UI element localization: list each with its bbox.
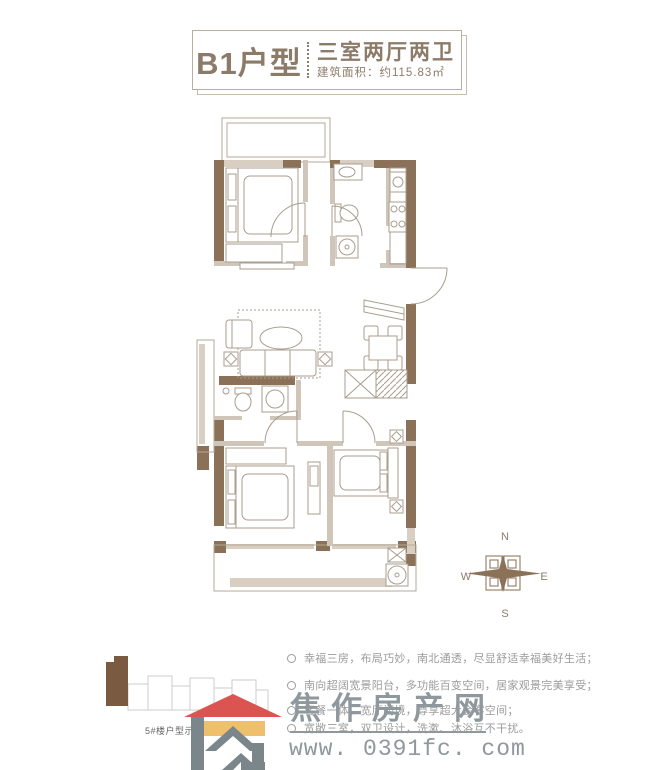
title-divider bbox=[307, 42, 309, 78]
hall-closet bbox=[345, 370, 407, 398]
floor-plan bbox=[190, 95, 455, 595]
unit-name: B1户型 bbox=[193, 38, 305, 83]
watermark-site-name: 焦作房产网 bbox=[290, 691, 495, 727]
logo-roof-icon bbox=[184, 694, 282, 717]
coffee-table-icon bbox=[260, 327, 302, 349]
sofa-icon bbox=[240, 350, 316, 376]
wardrobe-icon bbox=[226, 244, 282, 262]
compass-west-label: W bbox=[461, 571, 472, 583]
bathroom-south bbox=[223, 386, 288, 412]
unit-area: 建筑面积：约115.83㎡ bbox=[317, 66, 455, 81]
bed-icon bbox=[238, 168, 298, 242]
compass-east-label: E bbox=[540, 571, 547, 583]
compass: N S W E bbox=[455, 520, 555, 620]
bedroom-master bbox=[226, 168, 298, 269]
north-balcony bbox=[222, 118, 330, 162]
watermark-site-url: www. 0391fc. com bbox=[289, 736, 526, 762]
south-balcony bbox=[386, 548, 408, 586]
dining-area bbox=[364, 300, 404, 370]
closet-hatch-icon bbox=[376, 370, 407, 398]
bullet-icon bbox=[287, 654, 296, 663]
compass-south-label: S bbox=[501, 608, 508, 620]
site-logo bbox=[182, 692, 292, 770]
floorplan-page: B1户型 三室两厅两卫 建筑面积：约115.83㎡ bbox=[0, 0, 645, 770]
kitchen bbox=[389, 168, 406, 264]
compass-star-icon bbox=[467, 555, 541, 592]
bedroom-southeast bbox=[334, 430, 403, 513]
feature-text: 幸福三房，布局巧妙，南北通透，尽显舒适幸福美好生活； bbox=[304, 650, 598, 666]
wardrobe-icon bbox=[226, 448, 286, 464]
entry-door-icon bbox=[411, 268, 447, 304]
unit-type: 三室两厅两卫 bbox=[317, 40, 455, 66]
feature-item: 幸福三房，布局巧妙，南北通透，尽显舒适幸福美好生活； bbox=[287, 650, 598, 666]
living-room bbox=[224, 310, 332, 378]
armchair-icon bbox=[226, 320, 252, 348]
toilet-icon bbox=[235, 393, 251, 411]
title-right: 三室两厅两卫 建筑面积：约115.83㎡ bbox=[317, 40, 455, 81]
bedroom-southwest bbox=[226, 448, 320, 528]
tv-stand-icon bbox=[240, 263, 294, 269]
bullet-icon bbox=[287, 681, 296, 690]
dining-table-icon bbox=[369, 336, 397, 360]
title-box: B1户型 三室两厅两卫 建筑面积：约115.83㎡ bbox=[192, 30, 462, 90]
watermark-underline bbox=[290, 731, 486, 733]
compass-north-label: N bbox=[501, 531, 509, 543]
highlighted-building-icon bbox=[106, 656, 128, 706]
